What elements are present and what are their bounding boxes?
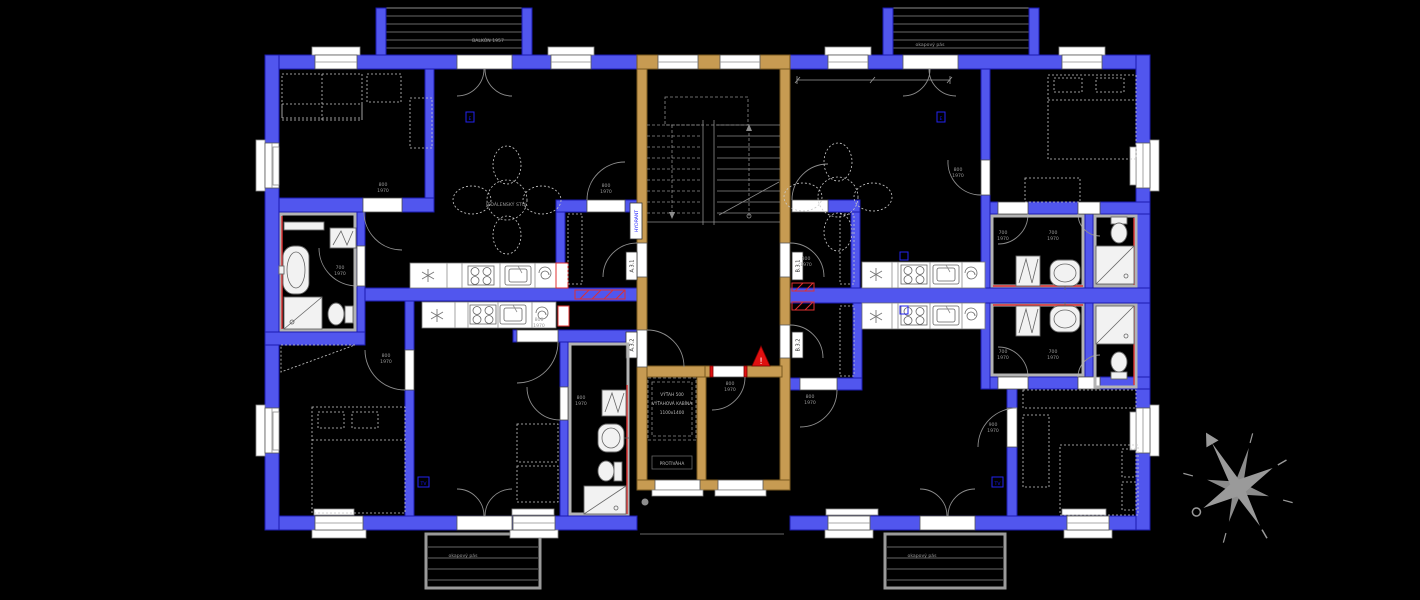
- dining-table-right: [784, 143, 892, 251]
- svg-text:1970: 1970: [987, 428, 999, 434]
- radiator: [1130, 412, 1136, 450]
- balcony-top-left-label: BALKÓN 1957: [472, 37, 504, 44]
- kitchen-right-top: [862, 252, 985, 288]
- shower-icon: [1096, 246, 1134, 284]
- radiator: [512, 509, 554, 515]
- shower-icon: [284, 297, 322, 329]
- bed: [1048, 75, 1136, 159]
- hall-wardrobe: [568, 214, 582, 284]
- radiator: [1062, 509, 1106, 515]
- svg-text:1970: 1970: [575, 401, 587, 407]
- washing-machine-icon: [602, 390, 626, 416]
- svg-text:1970: 1970: [533, 323, 545, 329]
- walls-left-block: [265, 55, 637, 530]
- svg-text:1970: 1970: [997, 355, 1009, 361]
- svg-text:1970: 1970: [1047, 236, 1059, 242]
- wardrobe: [1023, 415, 1049, 487]
- toilet-icon: [1111, 217, 1127, 243]
- shower-icon: [584, 486, 626, 514]
- walls-right-block: [790, 55, 1150, 530]
- elevator-counterweight-label: PROTIVÁHA: [660, 460, 685, 467]
- svg-text:800: 800: [802, 256, 811, 262]
- washbasin-icon: [598, 424, 629, 452]
- balcony-top-right-label: okapový pás: [916, 41, 946, 48]
- bed: [282, 74, 362, 120]
- radiator: [826, 509, 878, 515]
- svg-text:1970: 1970: [724, 387, 736, 393]
- apartment-tag-b32: B.3.2: [796, 339, 802, 352]
- staircase: [640, 97, 784, 534]
- svg-text:900: 900: [989, 422, 998, 428]
- washing-machine-icon: [1016, 256, 1040, 286]
- svg-text:800: 800: [577, 395, 586, 401]
- bathroom-right-top-a: [992, 216, 1083, 290]
- tv-marker: TV: [420, 481, 428, 487]
- floor-plan-drawing: BALKÓN 1957 okapový pás okapový pás okap…: [0, 0, 1420, 600]
- washing-machine-icon: [330, 228, 356, 248]
- radiator: [314, 509, 354, 515]
- corner-closet: [281, 345, 355, 372]
- dining-table-left: [453, 146, 561, 254]
- compass-rose-icon: [1161, 405, 1316, 565]
- svg-text:800: 800: [602, 183, 611, 189]
- dining-table-label: JEDÁLENSKÝ STÔL: [485, 201, 528, 208]
- radiator: [273, 147, 279, 185]
- svg-text:1970: 1970: [380, 359, 392, 365]
- washbasin-icon: [279, 246, 309, 294]
- svg-text:800: 800: [806, 394, 815, 400]
- svg-text:!: !: [759, 357, 763, 367]
- svg-text:1970: 1970: [334, 271, 346, 277]
- svg-text:700: 700: [336, 265, 345, 271]
- terrace-bottom-left: okapový pás: [426, 534, 540, 588]
- bathroom-left-bottom: [570, 344, 629, 514]
- bathroom-right-bottom-a: [992, 302, 1083, 375]
- svg-text:1970: 1970: [997, 236, 1009, 242]
- elevator-label-1: VÝŤAH 500: [660, 390, 684, 398]
- bathroom-right-top-b: [1095, 216, 1136, 286]
- elevator-label-3: 1100x1400: [660, 410, 685, 416]
- svg-text:700: 700: [999, 230, 1008, 236]
- entrance-column: [642, 499, 649, 506]
- radiator: [273, 412, 279, 450]
- apartment-tag-a32: A.3.2: [630, 339, 636, 352]
- stairwell-walls: [637, 55, 790, 490]
- hydrant-label: HYDRANT: [634, 210, 640, 232]
- bathroom-right-bottom-b: [1095, 305, 1136, 387]
- kitchen-left-bottom: [422, 302, 569, 328]
- svg-text:800: 800: [382, 353, 391, 359]
- wardrobe: [367, 74, 401, 102]
- svg-text:700: 700: [999, 349, 1008, 355]
- svg-text:800: 800: [954, 167, 963, 173]
- boiler: [556, 263, 568, 288]
- gas-point-marker: [900, 252, 908, 260]
- svg-text:700: 700: [1049, 230, 1058, 236]
- boiler: [558, 306, 569, 326]
- terrace-bottom-left-label: okapový pás: [449, 552, 479, 559]
- tv-marker: TV: [994, 481, 1002, 487]
- warning-triangle-icon: !: [752, 346, 770, 367]
- toilet-icon: [328, 303, 353, 325]
- kitchen-right-bottom: [862, 303, 985, 329]
- apartment-tag-a31: A.3.1: [630, 260, 636, 273]
- toilet-icon: [1111, 352, 1127, 379]
- hall-wardrobe: [840, 306, 854, 376]
- balcony-top-right: okapový pás: [883, 8, 1039, 55]
- desk: [1025, 178, 1080, 202]
- shower-icon: [1096, 306, 1134, 344]
- stairwell-labels: HYDRANT A.3.1 B.3.1 A.3.2 B.3.2: [626, 203, 803, 358]
- svg-text:800: 800: [726, 381, 735, 387]
- svg-text:1970: 1970: [600, 189, 612, 195]
- radiator: [1130, 147, 1136, 185]
- elevator-label-2: VÝŤAHOVÁ KABÍNA: [652, 399, 692, 407]
- elevator-shaft: VÝŤAH 500 VÝŤAHOVÁ KABÍNA 1100x1400 PROT…: [648, 346, 770, 469]
- electrical-marker: E: [940, 116, 943, 122]
- electrical-marker: E: [469, 116, 472, 122]
- svg-text:1970: 1970: [800, 262, 812, 268]
- wardrobe: [1023, 390, 1136, 408]
- svg-text:1970: 1970: [804, 400, 816, 406]
- bed: [1060, 445, 1138, 515]
- svg-text:800: 800: [379, 182, 388, 188]
- svg-text:700: 700: [1049, 349, 1058, 355]
- floor-plan-canvas: BALKÓN 1957 okapový pás okapový pás okap…: [0, 0, 1420, 600]
- terrace-bottom-right-label: okapový pás: [908, 552, 938, 559]
- svg-text:1970: 1970: [377, 188, 389, 194]
- kitchen-left-top: [410, 263, 568, 288]
- svg-text:800: 800: [535, 317, 544, 323]
- bed: [312, 407, 405, 513]
- svg-text:1970: 1970: [1047, 355, 1059, 361]
- desk: [517, 424, 558, 462]
- terrace-bottom-right: okapový pás: [885, 534, 1005, 588]
- desk: [517, 466, 558, 502]
- balcony-top-left: BALKÓN 1957: [376, 8, 532, 55]
- toilet-icon: [598, 461, 622, 481]
- svg-text:1970: 1970: [952, 173, 964, 179]
- washing-machine-icon: [1016, 306, 1040, 336]
